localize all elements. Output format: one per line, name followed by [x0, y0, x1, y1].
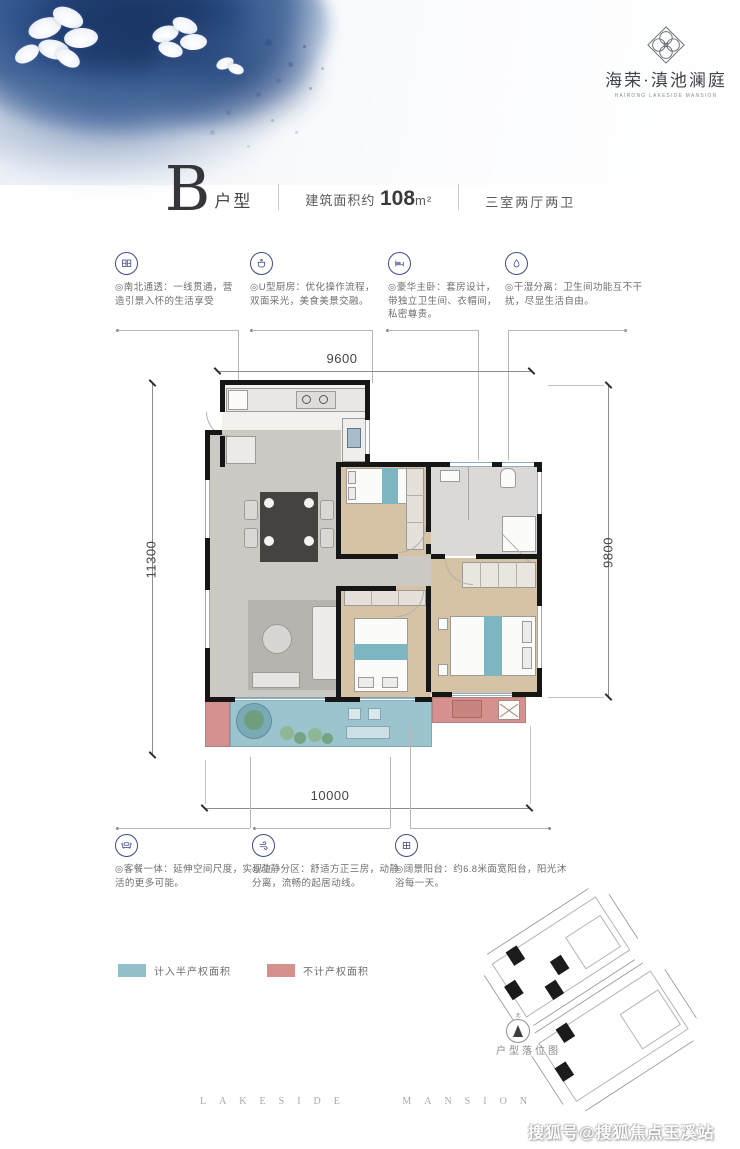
plate [304, 498, 314, 508]
pillow [348, 487, 356, 500]
window [365, 420, 370, 454]
wardrobe-divider [406, 495, 424, 496]
flower-bed-left [205, 697, 230, 747]
legend-swatch-pink [267, 964, 295, 977]
shower [502, 516, 536, 552]
unit-title: B 户型 建筑面积约 108m² 三室两厅两卫 [0, 156, 740, 218]
extension-line [205, 760, 206, 804]
pillow [348, 471, 356, 484]
window [537, 606, 542, 668]
wall [426, 544, 431, 554]
wall [220, 436, 225, 467]
watermark: 搜狐号@搜狐焦点玉溪站 [528, 1119, 715, 1143]
sofa [312, 606, 338, 680]
dimension-right: 9800 [601, 518, 616, 588]
appliance [452, 700, 482, 718]
legend-label: 不计产权面积 [303, 963, 369, 978]
plate [264, 498, 274, 508]
plate [264, 536, 274, 546]
tv-bench [252, 672, 300, 688]
leader-line [410, 828, 548, 829]
leader-line [250, 757, 251, 828]
bed-runner [354, 644, 408, 660]
wall [492, 462, 502, 467]
wall [368, 462, 428, 467]
bed-icon [388, 252, 411, 275]
extension-line [548, 385, 604, 386]
balcony-door [360, 698, 415, 701]
bed-runner [382, 468, 398, 504]
shrub [294, 732, 306, 744]
pillow [522, 621, 532, 643]
legend-item-half-property: 计入半产权面积 [118, 963, 231, 978]
cooking-pot-icon [250, 252, 273, 275]
wall [340, 462, 370, 467]
leader-dot [548, 827, 551, 830]
wall [336, 554, 398, 559]
wall [205, 697, 235, 702]
window [450, 462, 492, 467]
feature-zoning: ◎动静分区：舒适方正三房，动静分离，流畅的起居动线。 [252, 834, 402, 890]
feature-text: ◎动静分区：舒适方正三房，动静分离，流畅的起居动线。 [252, 863, 402, 890]
balcony-chair [348, 708, 361, 720]
rooms-text: 三室两厅两卫 [485, 192, 575, 211]
window-panels-icon [115, 252, 138, 275]
feature-text: ◎阔景阳台：约6.8米面宽阳台，阳光沐浴每一天。 [395, 863, 573, 890]
toilet [500, 468, 516, 488]
wall [431, 554, 445, 559]
siteplan-label: 户型落位图 [496, 1042, 561, 1057]
window [502, 462, 534, 467]
leader-line [508, 330, 626, 331]
area-prefix: 建筑面积约 [305, 193, 375, 208]
feature-text: ◎U型厨房：优化操作流程，双面采光，美食美景交融。 [250, 281, 376, 308]
bathroom-sink [440, 470, 460, 482]
burner [302, 395, 311, 404]
window [205, 590, 210, 648]
sink [347, 428, 361, 448]
leader-line [388, 330, 478, 331]
leader-line [255, 828, 390, 829]
leader-line [118, 828, 250, 829]
plate [304, 536, 314, 546]
brand-name-cn: 海荣·滇池澜庭 [596, 66, 736, 91]
unit-letter: B [165, 160, 211, 218]
leader-line [252, 330, 372, 331]
dimension-left: 11300 [144, 525, 159, 595]
dimension-line-bottom [205, 808, 530, 809]
wall [205, 538, 210, 590]
shrub [322, 733, 333, 744]
wall [537, 462, 542, 472]
wall [476, 554, 542, 559]
unit-suffix: 户型 [214, 187, 252, 212]
balcony-table [346, 726, 390, 739]
legend-label: 计入半产权面积 [154, 963, 231, 978]
wall [537, 514, 542, 606]
nightstand [438, 664, 448, 676]
divider [278, 184, 279, 210]
pillow [382, 677, 398, 688]
wardrobe [462, 562, 536, 588]
wall [415, 697, 432, 702]
dimension-top: 9600 [302, 351, 382, 366]
diamond-lotus-icon [596, 24, 736, 66]
divider [458, 184, 459, 210]
wall [205, 430, 210, 480]
feature-text: ◎豪华主卧：套房设计，带独立卫生间、衣帽间，私密尊贵。 [388, 281, 500, 322]
window [452, 693, 512, 696]
balcony-chair [368, 708, 381, 720]
extension-line [548, 697, 604, 698]
compass-icon [506, 1019, 530, 1043]
burner [319, 395, 328, 404]
balcony-door [235, 698, 325, 701]
footer-text: LAKESIDE MANSION [0, 1096, 740, 1107]
area-text: 建筑面积约 108m² [305, 187, 432, 211]
bed-runner [484, 616, 502, 676]
leader-line [238, 330, 239, 384]
legend-item-non-property: 不计产权面积 [267, 963, 369, 978]
pillow [358, 677, 374, 688]
brand-name-en: HAIRONG LAKESIDE MANSION [596, 93, 736, 99]
wall [336, 586, 396, 591]
wardrobe-divider [406, 522, 424, 523]
wardrobe-divider [498, 562, 499, 588]
shrub [280, 726, 294, 740]
coffee-table [262, 624, 292, 654]
feature-master-bedroom: ◎豪华主卧：套房设计，带独立卫生间、衣帽间，私密尊贵。 [388, 252, 500, 322]
plant [244, 710, 264, 730]
dining-chair [320, 528, 334, 548]
nightstand [438, 618, 448, 630]
legend: 计入半产权面积 不计产权面积 [118, 963, 369, 978]
pillow [522, 647, 532, 669]
feature-text: ◎干湿分离：卫生间功能互不干扰，尽显生活自由。 [505, 281, 650, 308]
dimension-line-top [218, 371, 532, 372]
wardrobe-divider [480, 562, 481, 588]
leader-line [410, 726, 411, 828]
wind-icon [252, 834, 275, 857]
leader-line [118, 330, 238, 331]
window [205, 480, 210, 538]
dining-chair [320, 500, 334, 520]
dining-chair [244, 528, 258, 548]
feature-kitchen: ◎U型厨房：优化操作流程，双面采光，美食美景交融。 [250, 252, 376, 308]
ac-unit [498, 700, 520, 720]
wall [220, 380, 370, 385]
dimension-bottom: 10000 [290, 788, 370, 803]
wall [432, 692, 452, 697]
bath-divider [468, 466, 469, 520]
compass: 北 [506, 1012, 530, 1043]
legend-swatch-teal [118, 964, 146, 977]
feature-balcony: ◎阔景阳台：约6.8米面宽阳台，阳光沐浴每一天。 [395, 834, 573, 890]
fridge [228, 390, 248, 410]
wall [205, 648, 210, 697]
brand-logo: 海荣·滇池澜庭 HAIRONG LAKESIDE MANSION [596, 24, 736, 99]
wardrobe-divider [516, 562, 517, 588]
sofa-icon [115, 834, 138, 857]
area-unit: m² [415, 193, 432, 208]
window-grid-icon [395, 834, 418, 857]
feature-north-south: ◎南北通透：一线贯通，营造引景入怀的生活享受 [115, 252, 241, 308]
dining-chair [244, 500, 258, 520]
wardrobe-divider [371, 590, 372, 606]
floor-plan [200, 378, 550, 760]
water-drop-icon [505, 252, 528, 275]
feature-text: ◎南北通透：一线贯通，营造引景入怀的生活享受 [115, 281, 241, 308]
wall [325, 697, 360, 702]
wall [336, 462, 341, 554]
compass-north-label: 北 [506, 1012, 530, 1019]
window [537, 472, 542, 514]
wall [220, 380, 225, 412]
kitchen-cabinet [226, 436, 256, 464]
wall [426, 586, 431, 692]
leader-line [390, 757, 391, 828]
wall [428, 462, 450, 467]
area-value: 108 [380, 187, 415, 210]
wall [365, 380, 370, 420]
wall [512, 692, 542, 697]
shrub [308, 728, 322, 742]
wall [426, 462, 431, 532]
floorplan-poster: 海荣·滇池澜庭 HAIRONG LAKESIDE MANSION B 户型 建筑… [0, 0, 740, 1149]
feature-dry-wet: ◎干湿分离：卫生间功能互不干扰，尽显生活自由。 [505, 252, 650, 308]
wall [336, 586, 341, 697]
